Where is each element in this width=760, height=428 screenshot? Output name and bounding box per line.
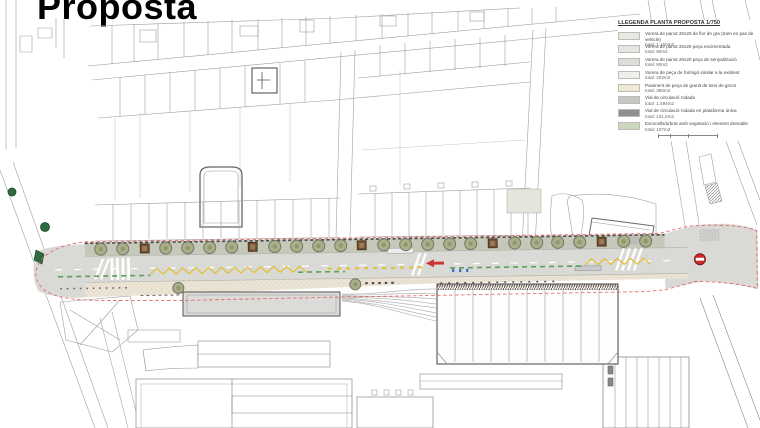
legend-area: total: 1.594m2 [645,101,695,107]
legend-label: Vial de circulació rodada en plataforma … [645,108,737,114]
legend-label: Escocells/arbrat amb vegetació i element… [645,121,748,127]
plaza [507,189,541,213]
legend: LLEGENDA PLANTA PROPOSTA 1/750 Vorera de… [618,20,755,141]
scale-bar [658,135,718,141]
parking-sign-icon [466,269,468,272]
legend-area: total: 90m2 [645,62,737,68]
legend-area: total: 380m2 [645,88,736,94]
legend-area: total: 90m2 [645,49,730,55]
parking-sign-icon [459,269,461,272]
legend-swatch [618,109,640,117]
legend-area: total: 107m2 [645,127,748,133]
planter-inner [490,241,495,246]
legend-items: Vorera de panot 20x20 de flor de gra (tr… [618,31,755,131]
station-platform [183,292,340,316]
legend-swatch [618,32,640,40]
legend-item: Vorera de peça de formigó similar a la e… [618,70,755,80]
legend-item: Vial de circulació rodada total: 1.594m2 [618,95,755,105]
legend-swatch [618,58,640,66]
train-shed [437,284,618,364]
plan-canvas: Proposta [0,0,760,428]
legend-item: Vial de circulació rodada en plataforma … [618,108,755,118]
planter-inner [250,244,255,249]
legend-item: Vorera de panot 20x20 peça de senyalitza… [618,57,755,67]
tree-icon [8,188,16,196]
corner-paving [700,229,720,241]
legend-area: total: 202m2 [645,75,739,81]
legend-area: total: 131,5m2 [645,114,737,120]
legend-swatch [618,84,640,92]
legend-swatch [618,122,640,130]
legend-swatch [618,96,640,104]
planter-inner [359,243,364,248]
legend-item: Paviment de peça de granit de tons de gr… [618,83,755,93]
planter-inner [142,246,147,251]
legend-title: LLEGENDA PLANTA PROPOSTA 1/750 [618,20,755,26]
railway-tracks [342,289,436,321]
parking-sign-icon [452,269,454,272]
legend-swatch [618,45,640,53]
legend-swatch [618,71,640,79]
street [33,223,758,300]
legend-item: Vorera de panot 20x20 de flor de gra (tr… [618,31,755,41]
legend-label: Vorera de panot 20x20 de flor de gra (tr… [645,31,755,42]
no-entry-sign-icon [694,254,705,265]
legend-item: Escocells/arbrat amb vegetació i element… [618,121,755,131]
tree-icon [41,223,50,232]
planter-inner [599,239,604,244]
